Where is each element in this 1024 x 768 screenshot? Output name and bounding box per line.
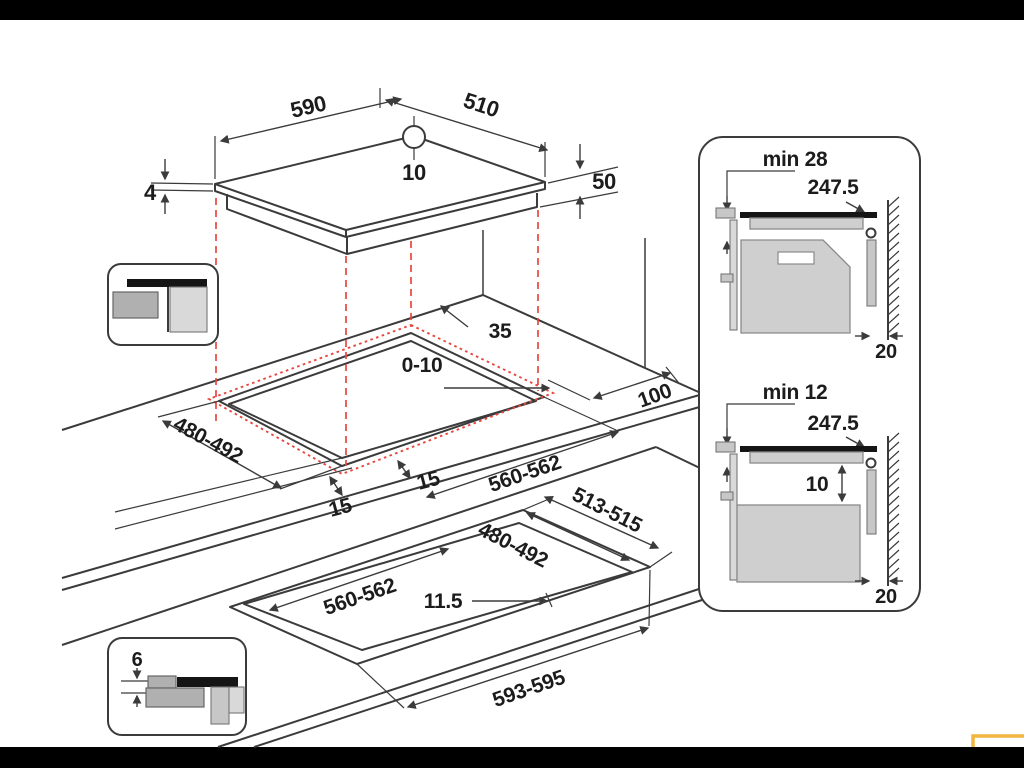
cabinet-side-strip	[730, 454, 737, 580]
install-depth-label: 247.5	[807, 412, 859, 435]
clearance-panel: min 28 247.5 20 min 12	[699, 137, 920, 611]
step-width-label: 11.5	[424, 590, 463, 613]
vertical-reference-lines	[483, 230, 645, 368]
recess-depth-label: 6	[132, 649, 143, 671]
clearance-below-label: 10	[806, 473, 829, 496]
outer-width-label: 593-595	[490, 666, 569, 712]
top-black-bar	[0, 0, 1024, 20]
min-clearance-label: min 28	[763, 148, 828, 171]
install-depth-label: 247.5	[807, 176, 859, 199]
cabinet-section-block	[229, 687, 244, 713]
side-clearance-label: 100	[635, 379, 675, 412]
wall-gap-label: 20	[875, 341, 897, 363]
hob-width-label: 590	[288, 90, 329, 122]
worktop-section-block	[146, 688, 204, 707]
hob-glass-section	[740, 212, 877, 218]
hob-depth-label: 510	[460, 87, 502, 122]
cabinet-rail-stub	[721, 492, 733, 500]
min-clearance-label: min 12	[763, 381, 828, 404]
outer-depth-label: 513-515	[568, 483, 646, 538]
worktop-cutout-view: 35 0-10 480-492 560-562 15 15 100	[62, 198, 703, 590]
worktop-edge-block	[716, 442, 735, 452]
body-height-label: 50	[592, 169, 616, 194]
mounting-rail	[867, 470, 876, 534]
front-clearance-left-dimension	[330, 477, 342, 495]
hob-body-section-block	[211, 687, 229, 724]
glass-thickness-reference	[151, 183, 213, 191]
front-clearance-right-dimension	[398, 461, 410, 478]
installation-diagram-page: 590 510 10 4 50	[0, 0, 1024, 768]
ledge-section-block	[148, 676, 176, 688]
isometric-hob-view: 590 510 10 4 50	[144, 87, 618, 254]
oven-vent-slot	[778, 252, 814, 264]
worktop-edge-block	[716, 208, 735, 218]
centre-hole-mark	[403, 126, 425, 148]
hob-glass-section	[740, 446, 877, 452]
edge-overlap-label: 0-10	[402, 354, 443, 377]
recess-outer-edge	[230, 510, 650, 664]
cabinet-rail-stub	[721, 274, 733, 282]
drawer-body	[737, 505, 860, 582]
fixing-point	[867, 229, 876, 238]
wall-gap-label: 20	[875, 586, 897, 608]
yellow-corner-accent	[973, 736, 1024, 747]
hob-glass-top	[215, 136, 545, 230]
worktop-section-block	[113, 292, 158, 318]
bottom-black-bar	[0, 747, 1024, 768]
rear-clearance-arrow	[441, 306, 468, 327]
front-clearance-left-label: 15	[326, 494, 355, 522]
inset-flush-mount: 6	[108, 638, 246, 735]
glass-section-bar	[127, 279, 207, 287]
glass-section-bar	[177, 677, 238, 687]
depth-range-label: 480-492	[170, 413, 247, 469]
mounting-rail	[867, 240, 876, 306]
hob-installation-diagram: 590 510 10 4 50	[0, 0, 1024, 768]
glass-thickness-label: 4	[144, 180, 157, 205]
front-clearance-reference-lines	[115, 458, 352, 529]
hob-body-section	[750, 218, 863, 229]
width-range-extension	[544, 397, 616, 430]
rear-clearance-label: 35	[489, 320, 512, 343]
hob-body-section	[750, 452, 863, 463]
centre-offset-label: 10	[402, 160, 426, 185]
inset-surface-mount	[108, 264, 218, 345]
fixing-point	[867, 459, 876, 468]
hob-body-section-block	[170, 287, 207, 332]
